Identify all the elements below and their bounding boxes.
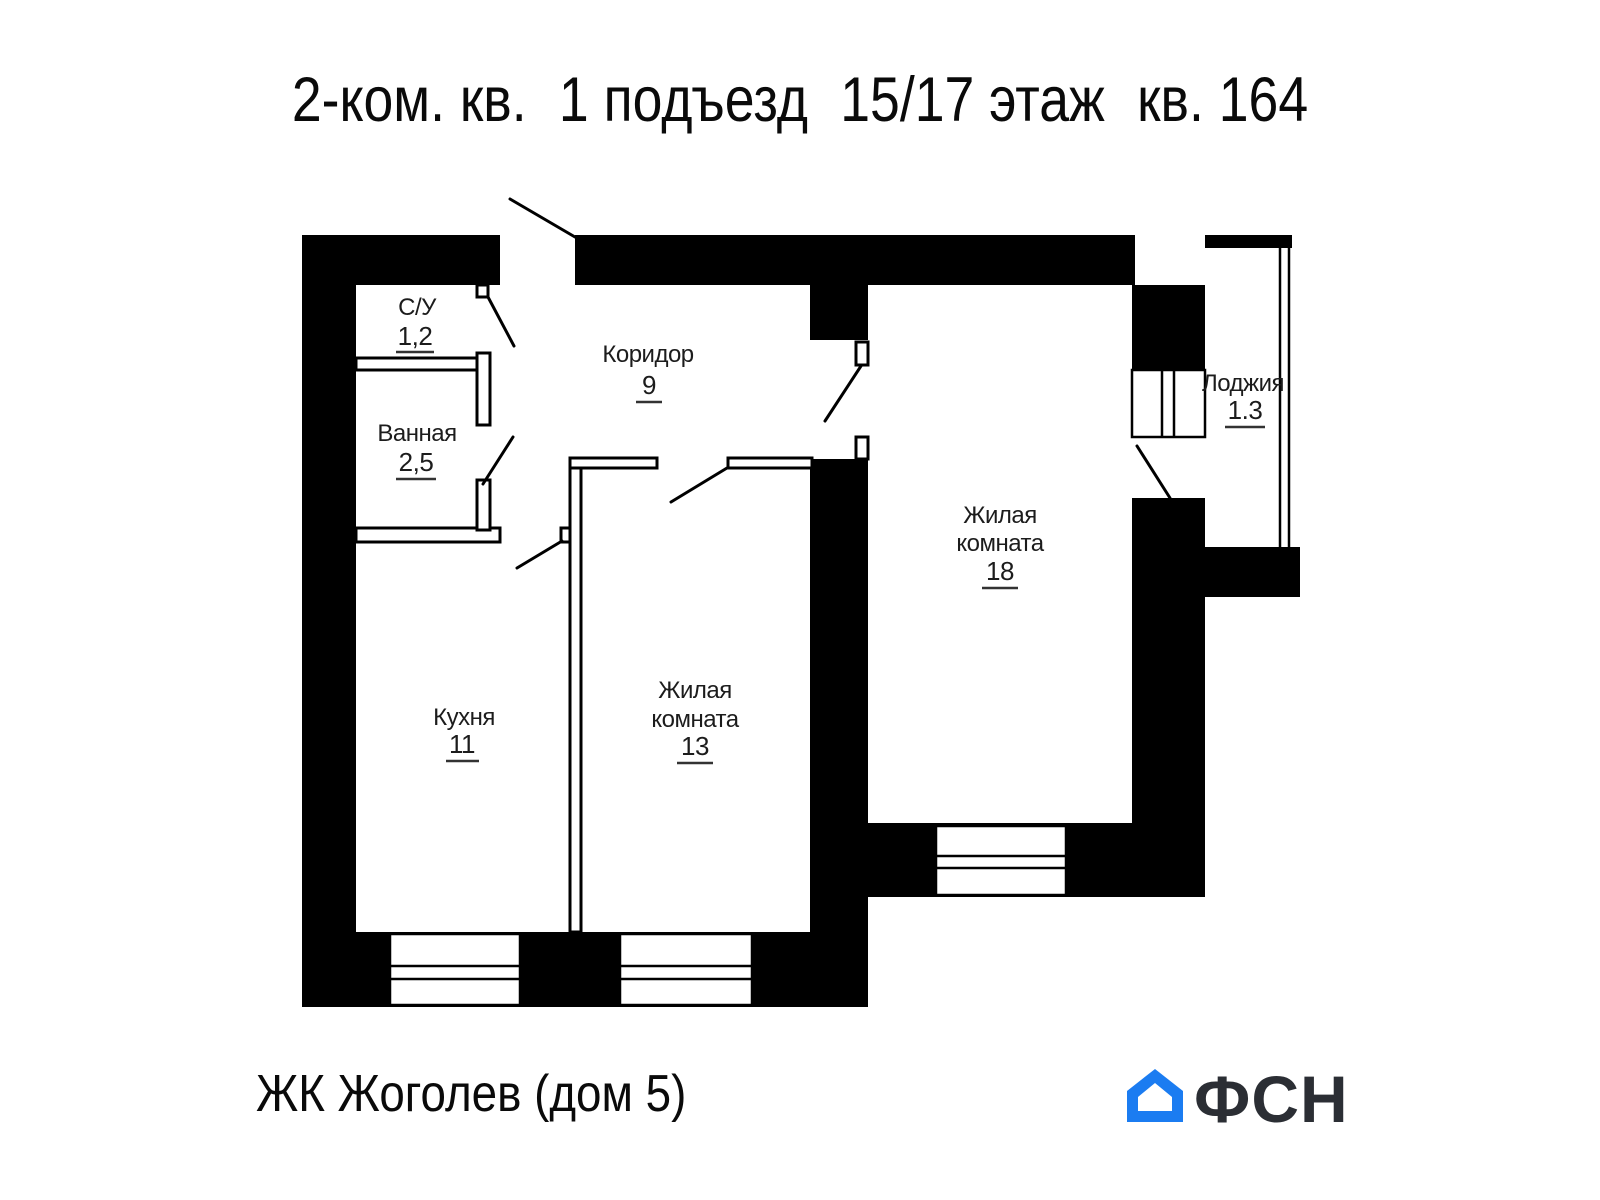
partition-room13-top-right	[728, 458, 812, 468]
label-room13-line1: Жилая	[658, 677, 731, 704]
jamb-su-top	[477, 285, 488, 297]
partition-hall-column-b	[477, 480, 490, 530]
label-corridor-name: Коридор	[602, 341, 693, 368]
door-loggia	[1137, 446, 1170, 498]
label-su: С/У 1,2	[396, 294, 437, 352]
label-corridor: Коридор 9	[602, 341, 693, 402]
window-room13	[620, 934, 752, 1005]
fsn-logo: ФСН	[1112, 1052, 1362, 1132]
wall-ne-column	[1132, 285, 1205, 370]
wall-outer-left	[302, 235, 356, 1007]
partition-su-bath	[356, 358, 477, 370]
window-room13-frame	[620, 934, 752, 1005]
jamb-room18-upper	[856, 342, 868, 365]
wall-loggia-bottom	[1205, 547, 1300, 597]
label-room18: Жилая комната 18	[956, 502, 1044, 588]
label-bath: Ванная 2,5	[377, 420, 456, 479]
door-entrance	[510, 199, 575, 237]
window-room18-frame	[936, 826, 1066, 895]
fsn-house-icon	[1127, 1069, 1183, 1122]
floor-plan-svg: С/У 1,2 Ванная 2,5 Коридор 9 Кухня 11 Жи…	[0, 0, 1600, 1200]
fsn-logo-text: ФСН	[1194, 1062, 1349, 1132]
label-room13-line2: комната	[651, 706, 739, 733]
label-su-area: 1,2	[398, 321, 433, 351]
wall-mid-vertical	[810, 459, 868, 1007]
jamb-room18-lower	[856, 437, 868, 459]
window-loggia	[1132, 370, 1205, 437]
door-room18	[825, 366, 861, 421]
label-room18-line1: Жилая	[963, 502, 1036, 529]
window-loggia-frame	[1132, 370, 1205, 437]
label-bath-area: 2,5	[399, 447, 434, 477]
window-room18	[936, 826, 1066, 895]
label-room18-area: 18	[986, 556, 1014, 586]
label-loggia: Лоджия 1.3	[1202, 370, 1284, 427]
label-kitchen-area: 11	[449, 729, 475, 759]
window-kitchen	[390, 934, 520, 1005]
wall-loggia-top	[1205, 235, 1292, 248]
label-su-name: С/У	[398, 294, 437, 321]
door-su	[488, 297, 514, 346]
label-kitchen-name: Кухня	[433, 704, 495, 731]
partitions	[356, 285, 868, 932]
door-bath	[483, 437, 513, 484]
label-kitchen: Кухня 11	[433, 704, 495, 761]
wall-stub-room18	[810, 285, 868, 340]
loggia-glazing	[1280, 248, 1289, 547]
label-corridor-area: 9	[642, 370, 656, 400]
window-kitchen-frame	[390, 934, 520, 1005]
partition-hall-column-a	[477, 353, 490, 425]
wall-bottom-sw	[302, 932, 868, 1007]
label-room18-line2: комната	[956, 530, 1044, 557]
wall-top-left	[302, 235, 500, 285]
label-loggia-area: 1.3	[1228, 395, 1263, 425]
wall-top-main	[575, 235, 1135, 285]
project-name: ЖК Жоголев (дом 5)	[256, 1064, 686, 1124]
door-room13	[671, 468, 727, 502]
walls	[302, 235, 1300, 1007]
door-kitchen	[517, 541, 562, 568]
label-room13: Жилая комната 13	[651, 677, 739, 763]
label-bath-name: Ванная	[377, 420, 456, 447]
partition-kitchen-room13	[570, 458, 581, 932]
label-loggia-name: Лоджия	[1202, 370, 1284, 397]
label-room13-area: 13	[681, 731, 709, 761]
floorplan-page: 2-ком. кв. 1 подъезд 15/17 этаж кв. 164	[0, 0, 1600, 1200]
partition-room13-top-left	[570, 458, 657, 468]
